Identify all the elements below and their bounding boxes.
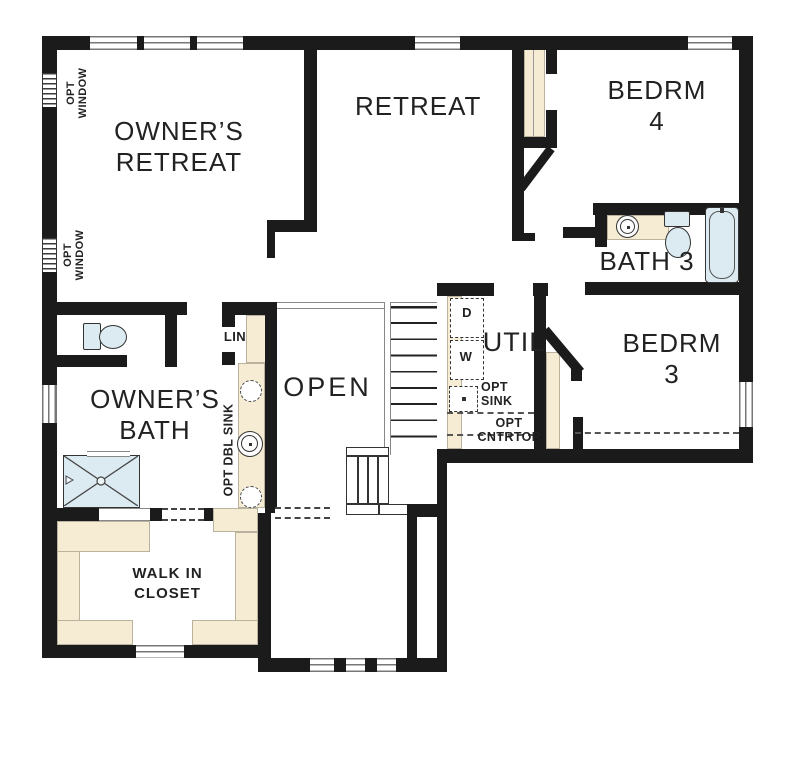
wall [595,215,607,247]
window [377,658,396,672]
wall [571,369,582,381]
room-label-bedrm3: BEDRM 3 [612,328,732,389]
wall [57,355,127,367]
window-mullion [137,36,144,50]
wall [165,302,177,367]
wall [222,352,235,365]
opt-dbl-sink-label: OPT DBL SINK [222,393,238,508]
toilet-icon [664,211,690,227]
window [346,658,365,672]
window [688,36,732,50]
wall [150,508,162,521]
wall [585,282,739,295]
dryer-label: D [458,306,476,321]
shower-icon [63,455,140,508]
shelf-divider-line [533,48,534,136]
sink-drain [627,226,630,229]
window [415,36,460,50]
closet-shelf-bottomright [192,620,258,645]
window [739,382,753,427]
opt-window-label: OPT WINDOW [62,223,92,287]
room-label-owners-retreat: OWNER’S RETREAT [94,116,264,177]
room-label-open: OPEN [270,372,385,404]
window [310,658,334,672]
wall [407,517,417,665]
opt-door-opening [162,508,204,521]
shower-door [87,451,130,457]
closet-shelf-topright [213,508,258,532]
window [90,36,243,50]
stair-landing [346,504,408,515]
room-label-util: UTIL [480,327,548,359]
opt-window-label: OPT WINDOW [65,61,95,125]
washer-label: W [457,350,475,365]
wall [243,36,415,50]
closet-shelf-topleft [57,521,150,552]
room-label-owners-bath: OWNER’S BATH [70,384,240,445]
bathtub-icon [705,207,739,283]
wall [546,47,557,74]
sink-drain [249,443,252,446]
lin-shelf [246,315,266,363]
room-label-retreat: RETREAT [355,91,475,122]
window [136,645,184,658]
cased-opening [275,507,330,519]
window-mullion [190,36,197,50]
tread-line [367,457,369,503]
wall [184,645,258,658]
wall [267,220,317,232]
tread-line [357,457,359,503]
landing-divider [378,505,380,514]
stair-rail-cap [346,447,389,456]
wall [42,645,136,658]
opt-window [42,73,57,107]
wall [57,508,99,521]
wall [42,423,57,658]
room-label-bedrm4: BEDRM 4 [597,75,717,136]
wall [437,449,753,463]
room-label-lin: LIN [221,330,249,345]
opt-window [42,238,57,272]
wall [42,272,57,385]
wall [258,513,271,658]
window [42,385,57,423]
wall [222,315,235,327]
chase-closet-shelf [524,47,545,137]
wall [334,658,346,672]
stairs-upper-flight [391,306,437,449]
wall [437,463,447,672]
stairs-lower-flight [346,456,389,504]
wall [437,283,494,296]
tub-faucet [720,207,724,213]
floor-plan: OWNER’S RETREAT RETREAT BEDRM 4 BATH 3 B… [0,0,800,759]
sink-drain [462,397,466,401]
wall [407,504,447,517]
tread-line [377,457,379,503]
wall [739,36,753,382]
wall [512,233,535,241]
wall [563,227,595,238]
wall [265,302,277,513]
opt-line [447,412,534,414]
wall [460,36,688,50]
wall [365,658,377,672]
bedrm3-closet-shelf [546,352,560,449]
wall [267,232,275,258]
closet-shelf-bottomleft [57,620,133,645]
opt-sink-box [449,386,478,412]
opt-line [575,432,739,434]
wall [512,36,524,233]
room-label-walk-in-closet: WALK IN CLOSET [110,564,225,603]
wall [396,658,447,672]
opt-cntrtop-label: OPT CNTRTOP [474,416,544,444]
room-label-bath3: BATH 3 [592,246,702,277]
wall [258,658,310,672]
opt-sink-label: OPT SINK [481,380,531,408]
wall [42,107,57,238]
opt-sink-icon [240,486,262,508]
wall [304,36,317,222]
toilet-icon [99,325,127,349]
wall [204,508,213,521]
opt-sink-icon [240,380,262,402]
cased-opening [99,508,150,521]
wall [42,36,57,73]
stair-stringer [384,302,391,455]
